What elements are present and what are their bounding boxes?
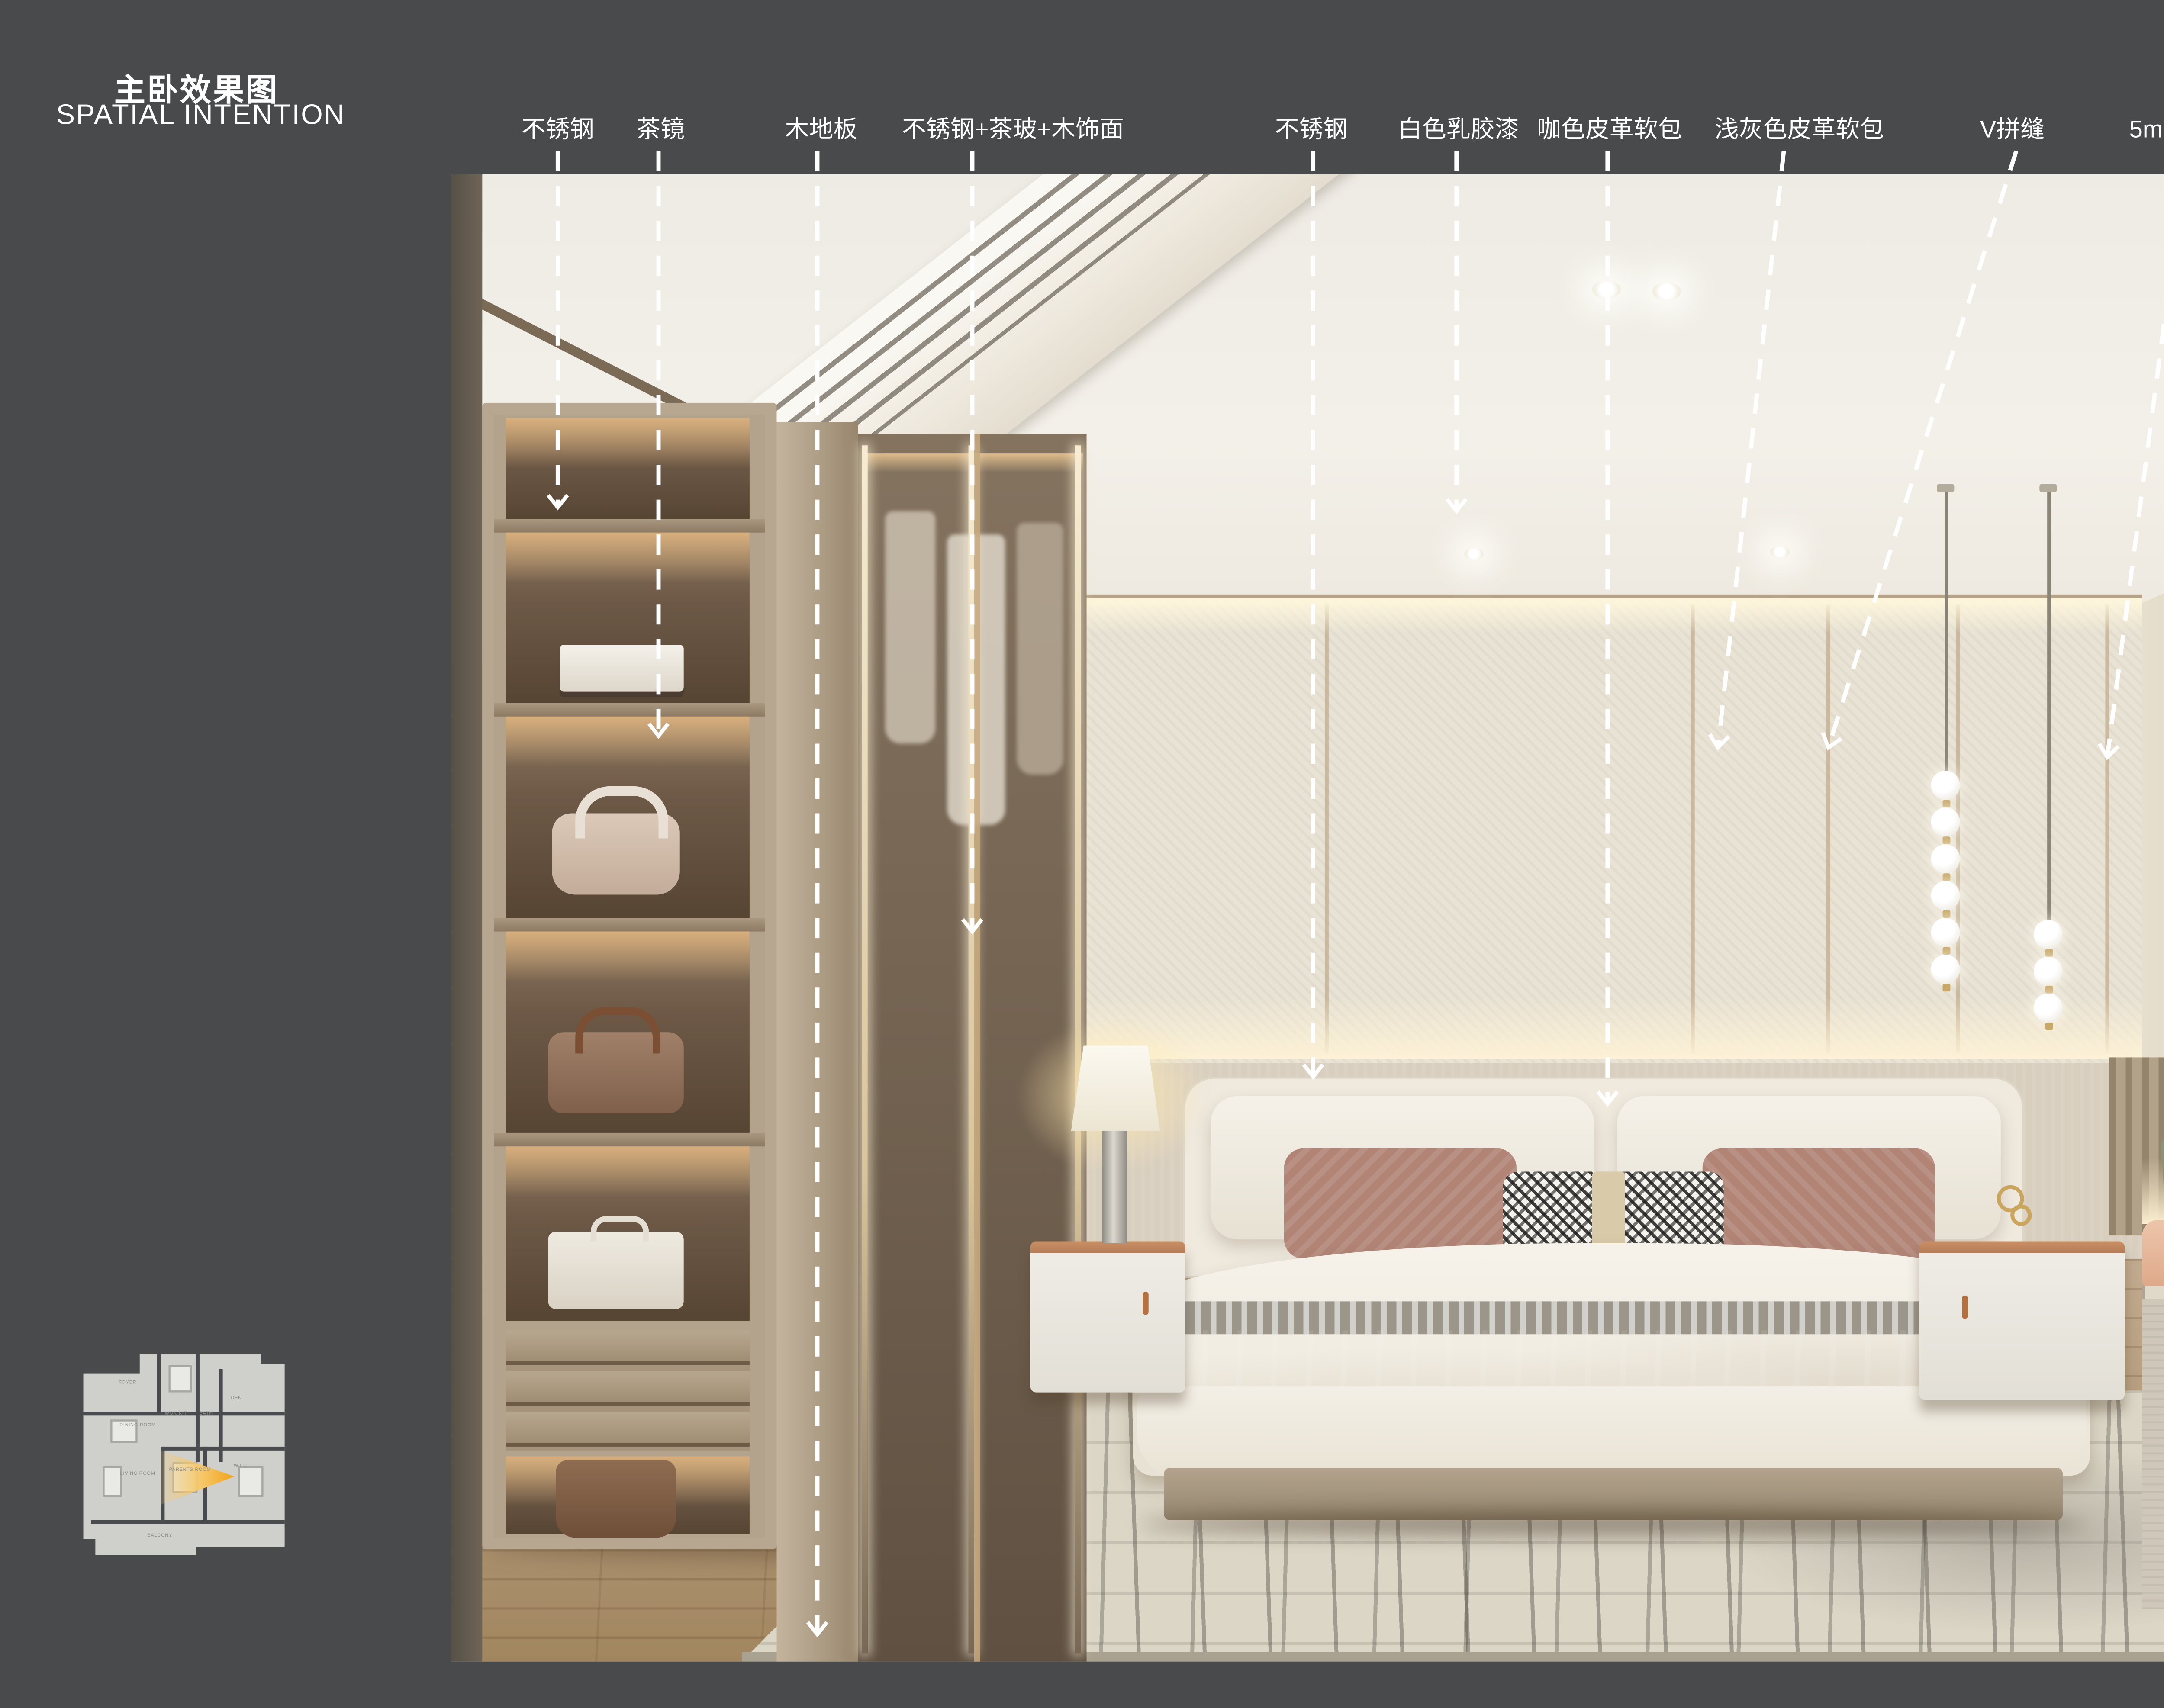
downlight-small	[1464, 548, 1484, 560]
hanging-clothes	[1017, 523, 1063, 775]
floorplan-thumbnail: FOYERDINING ROOMWOK KITBATHDENLIVING ROO…	[77, 1346, 290, 1563]
hanging-clothes	[885, 511, 935, 743]
wardrobe-edge-light	[862, 445, 866, 1653]
plan-wall	[196, 1354, 199, 1462]
drawer	[506, 1330, 750, 1365]
pendant-globe	[1931, 918, 1960, 947]
headboard-wall-panels	[1083, 598, 2142, 1063]
nightstand-right	[1919, 1242, 2125, 1400]
drawer	[506, 1371, 750, 1406]
pillow-mauve	[1284, 1148, 1517, 1259]
pendant-globe	[1931, 807, 1960, 836]
pillow-mauve	[1703, 1148, 1935, 1259]
globe-connector	[1942, 800, 1949, 807]
gold-decor	[1993, 1181, 2043, 1239]
globe-connector	[1942, 984, 1949, 991]
plan-wall	[161, 1447, 284, 1450]
plan-room-7: W.I.C	[234, 1464, 247, 1469]
cabinet-niche	[506, 932, 750, 1133]
wardrobe-edge-light	[969, 445, 973, 1653]
plan-room-4: DEN	[231, 1395, 242, 1401]
plan-sofa	[103, 1466, 122, 1497]
shelf	[494, 1133, 765, 1146]
panel-seam	[1691, 604, 1694, 1053]
cabinet-niche	[506, 418, 750, 519]
plan-room-2: WOK KIT	[165, 1411, 187, 1417]
table-lamp-shade	[1071, 1046, 1160, 1131]
display-cabinet	[482, 403, 776, 1549]
pendant-globe	[1931, 881, 1960, 910]
shelf	[494, 918, 765, 931]
drawer-handle	[1143, 1292, 1148, 1315]
headboard-cove-light	[1083, 997, 2142, 1059]
duvet-front	[1137, 1386, 2086, 1480]
panel-v-seam	[1826, 604, 1829, 1053]
plan-room-6: PARENTS ROOM	[169, 1467, 211, 1473]
globe-connector	[2044, 986, 2052, 994]
page-title-en: SPATIAL INTENTION	[56, 101, 345, 132]
wood-stile	[777, 422, 858, 1662]
globe-connector	[1942, 947, 1949, 955]
callout-label-7: 浅灰色皮革软包	[1715, 109, 1884, 145]
cabinet-niche	[506, 1146, 750, 1321]
pendant-globe	[2034, 957, 2063, 986]
panel-seam	[1325, 604, 1328, 1053]
downlight	[1592, 281, 1621, 298]
plan-kitchen	[168, 1365, 192, 1393]
cabinet-niche	[506, 717, 750, 918]
plan-room-1: DINING ROOM	[119, 1423, 156, 1429]
callout-label-3: 不锈钢+茶玻+木饰面	[902, 109, 1124, 145]
plan-wall	[157, 1354, 160, 1412]
window-seat-base	[2142, 1299, 2164, 1609]
pendant-globe	[2034, 994, 2063, 1023]
pendant-globe	[1931, 771, 1960, 800]
window-seat-cove-light	[2142, 1158, 2164, 1224]
shelf	[494, 519, 765, 532]
slide: 主卧效果图 SPATIAL INTENTION	[0, 0, 2164, 1707]
drawer-handle	[1962, 1296, 1968, 1319]
floorplan-body: FOYERDINING ROOMWOK KITBATHDENLIVING ROO…	[83, 1354, 284, 1555]
pendant-globe	[2034, 920, 2063, 949]
handbag-chain	[556, 1460, 676, 1538]
pendant-globe	[1931, 955, 1960, 984]
callout-label-0: 不锈钢	[522, 109, 594, 145]
plan-wall	[91, 1520, 285, 1523]
vanity-case	[548, 1232, 683, 1309]
callout-label-8: V拼缝	[1980, 109, 2045, 145]
callout-label-6: 咖色皮革软包	[1537, 109, 1682, 145]
pendant-globe	[1931, 844, 1960, 873]
callout-label-5: 白色乳胶漆	[1398, 109, 1519, 145]
pendant-canopy	[2039, 484, 2057, 492]
handbag-monogram	[548, 1032, 683, 1113]
shelf	[494, 703, 765, 716]
drawer	[506, 1412, 750, 1447]
handbag-cream	[552, 814, 679, 895]
pendant-wire	[2047, 488, 2050, 920]
cabinet-niche	[506, 1456, 750, 1534]
stainless-door-frame	[973, 434, 979, 1661]
callout-label-2: 木地板	[785, 109, 857, 145]
globe-connector	[1942, 910, 1949, 918]
plan-room-8: BALCONY	[148, 1532, 172, 1538]
pendant-wire	[1945, 488, 1948, 775]
bedroom-render	[451, 174, 2164, 1662]
globe-connector	[1942, 836, 1949, 844]
callout-label-9: 5mm不锈钢	[2129, 109, 2164, 145]
bed-shadow	[1141, 1512, 2086, 1536]
cabinet-drawers	[506, 1330, 750, 1450]
callout-label-1: 茶镜	[636, 109, 685, 145]
callout-label-4: 不锈钢	[1275, 109, 1348, 145]
downlight	[1652, 283, 1681, 300]
nightstand-leather-top	[1919, 1242, 2125, 1253]
globe-connector	[2044, 949, 2052, 957]
panel-steel-seam	[2105, 604, 2108, 1053]
globe-connector	[2044, 1023, 2052, 1030]
plan-room-5: LIVING ROOM	[120, 1472, 155, 1477]
cabinet-niche	[506, 533, 750, 703]
nightstand-left	[1030, 1242, 1185, 1393]
cove-light	[1083, 598, 2142, 634]
table-lamp-base	[1102, 1131, 1127, 1243]
downlight-small	[1770, 546, 1790, 558]
globe-connector	[1942, 873, 1949, 881]
plan-room-3: BATH	[200, 1411, 213, 1417]
jewelry-box	[560, 645, 683, 691]
plan-bed2	[238, 1466, 263, 1497]
plan-room-0: FOYER	[119, 1379, 136, 1384]
window-seat-cushion	[2142, 1220, 2164, 1293]
left-wall-edge	[451, 174, 483, 1662]
pendant-canopy	[1937, 484, 1954, 492]
window-seat-marble-trim	[2142, 1286, 2164, 1299]
